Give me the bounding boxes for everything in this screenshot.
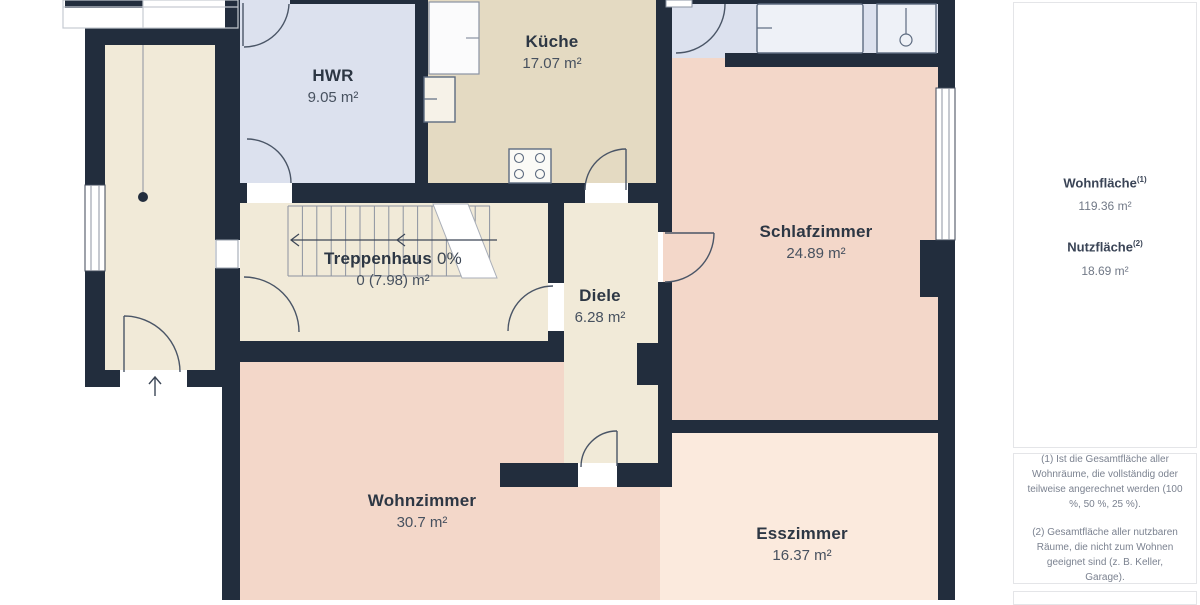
entrance-arrow-icon — [149, 377, 161, 396]
info-sidebar: Wohnfläche(1) 119.36 m² Nutzfläche(2) 18… — [1012, 0, 1200, 600]
room-wohnzimmer — [240, 463, 500, 487]
wohnflaeche-block: Wohnfläche(1) 119.36 m² — [1014, 175, 1196, 213]
next-panel-cut — [1013, 591, 1197, 605]
shower-icon — [877, 4, 936, 53]
wohnflaeche-footnote-ref: (1) — [1137, 175, 1147, 184]
room-treppenhaus — [240, 203, 548, 341]
window-left — [85, 185, 105, 271]
room-diele — [564, 203, 658, 463]
area-summary-panel: Wohnfläche(1) 119.36 m² Nutzfläche(2) 18… — [1013, 2, 1197, 448]
stove-icon — [509, 149, 551, 183]
floorplan-canvas — [0, 0, 1012, 600]
wohnflaeche-value: 119.36 m² — [1014, 199, 1196, 213]
bathtub-icon — [757, 4, 863, 53]
window-right — [936, 88, 955, 240]
wohnflaeche-label: Wohnfläche(1) — [1014, 175, 1196, 190]
room-esszimmer — [660, 432, 938, 600]
room-wohnzimmer — [240, 362, 564, 463]
room-hwr — [240, 0, 415, 183]
kitchen-sink-icon — [424, 77, 455, 122]
footnotes-panel: (1) Ist die Gesamtfläche aller Wohnräume… — [1013, 453, 1197, 584]
kitchen-cabinet-icon — [429, 2, 479, 74]
nutzflaeche-footnote-ref: (2) — [1133, 239, 1143, 248]
room-vestibule — [105, 45, 215, 370]
floorplan: HWR 9.05 m² Küche 17.07 m² Schlafzimmer … — [0, 0, 1012, 600]
nutzflaeche-block: Nutzfläche(2) 18.69 m² — [1014, 239, 1196, 277]
room-schlafzimmer — [663, 58, 938, 420]
room-wohnzimmer — [240, 487, 660, 600]
footnote-2: (2) Gesamtfläche aller nutzbaren Räume, … — [1027, 525, 1183, 585]
footnote-1: (1) Ist die Gesamtfläche aller Wohnräume… — [1027, 452, 1183, 512]
nutzflaeche-value: 18.69 m² — [1014, 264, 1196, 278]
nutzflaeche-label: Nutzfläche(2) — [1014, 239, 1196, 254]
